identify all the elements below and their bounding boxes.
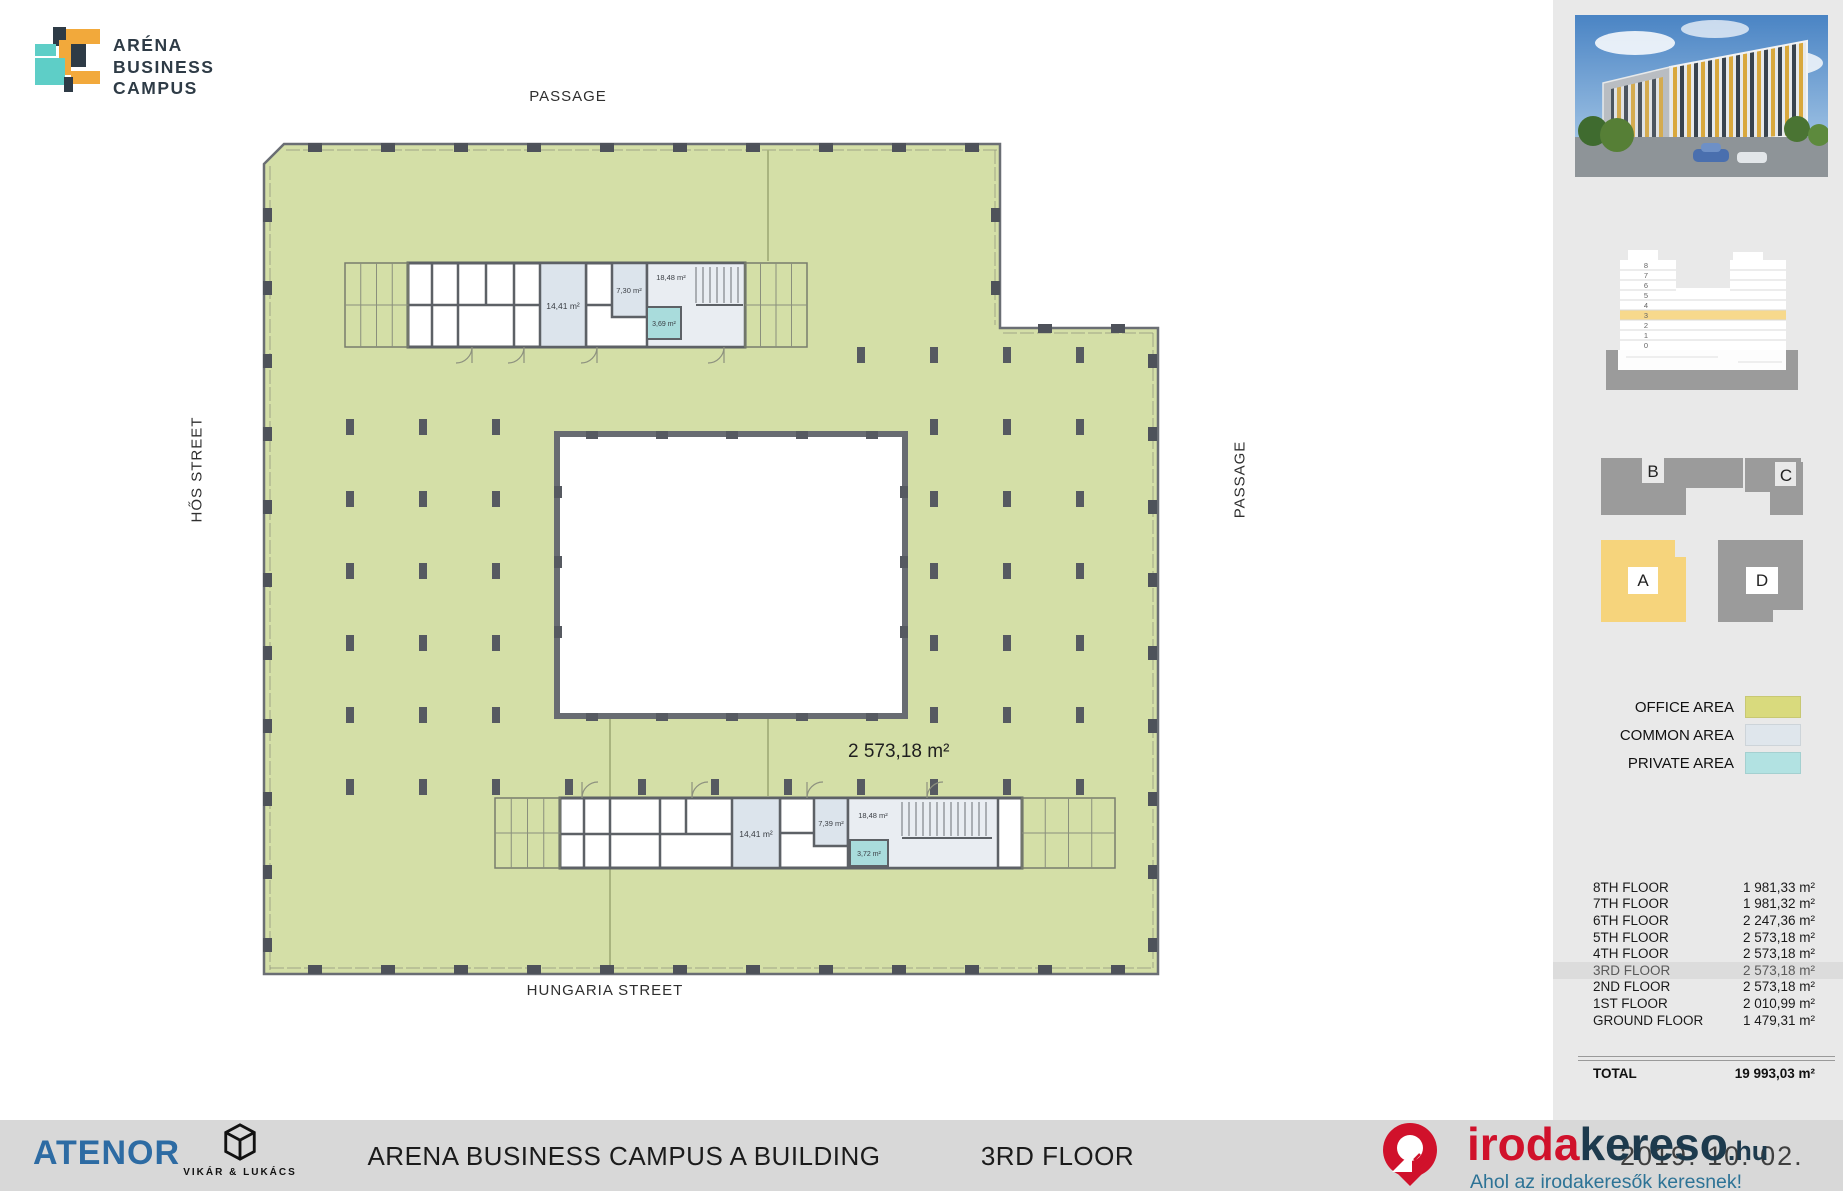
arena-logo-text: ARÉNA BUSINESS CAMPUS bbox=[113, 27, 214, 100]
street-label-hos-street: HŐS STREET bbox=[189, 390, 206, 550]
vikar-lukacs-name: VIKÁR & LUKÁCS bbox=[180, 1167, 300, 1178]
table-row: 1ST FLOOR 2 010,99 m² bbox=[1553, 995, 1843, 1012]
stack-floor-number-highlighted: 3 bbox=[1644, 311, 1648, 320]
room-label: 3,69 m² bbox=[652, 321, 676, 328]
legend-swatch-private bbox=[1745, 752, 1801, 774]
drawing-floor-label: 3RD FLOOR bbox=[950, 1141, 1165, 1172]
irodakereso-wordmark: irodakereso.hu bbox=[1467, 1122, 1768, 1173]
room-label: 3,72 m² bbox=[857, 851, 881, 858]
table-row: 8TH FLOOR 1 981,33 m² bbox=[1553, 879, 1843, 896]
page: ARÉNA BUSINESS CAMPUS PASSAGE HŐS STREET… bbox=[0, 0, 1843, 1191]
table-divider bbox=[1578, 1056, 1835, 1061]
room-label: 18,48 m² bbox=[656, 273, 686, 282]
atrium bbox=[557, 434, 905, 716]
table-row-highlighted: 3RD FLOOR 2 573,18 m² bbox=[1553, 962, 1843, 979]
stack-floor-number: 6 bbox=[1644, 281, 1648, 290]
site-block-diagram: B C A D bbox=[1600, 455, 1805, 625]
legend-label: OFFICE AREA bbox=[1635, 699, 1734, 716]
stack-floor-number: 4 bbox=[1644, 301, 1648, 310]
legend-label: COMMON AREA bbox=[1620, 727, 1734, 744]
stack-floor-number: 2 bbox=[1644, 321, 1648, 330]
street-label-hungaria-street: HUNGARIA STREET bbox=[500, 982, 710, 999]
total-label: TOTAL bbox=[1593, 1066, 1637, 1081]
logo-line-2: BUSINESS bbox=[113, 57, 214, 79]
floor-area: 1 981,33 m² bbox=[1743, 880, 1815, 895]
sidebar: 8 7 6 5 4 3 2 1 0 B C A bbox=[1553, 0, 1843, 1120]
arena-logo-icon bbox=[35, 27, 100, 92]
room-label: 7,30 m² bbox=[616, 286, 642, 295]
legend: OFFICE AREA COMMON AREA PRIVATE AREA bbox=[1553, 697, 1843, 781]
floor-area: 2 573,18 m² bbox=[1743, 946, 1815, 961]
legend-item-common: COMMON AREA bbox=[1553, 725, 1843, 745]
floor-name: 3RD FLOOR bbox=[1593, 963, 1670, 978]
block-a-label: A bbox=[1637, 571, 1649, 590]
floor-area: 1 981,32 m² bbox=[1743, 896, 1815, 911]
floor-name: 2ND FLOOR bbox=[1593, 979, 1670, 994]
stack-floor-number: 1 bbox=[1644, 331, 1648, 340]
table-row: 2ND FLOOR 2 573,18 m² bbox=[1553, 979, 1843, 996]
office-area-value: 2 573,18 m² bbox=[848, 741, 949, 763]
floor-plan: 14,41 m² 7,30 m² 18,48 m² 3,69 m² 14,41 … bbox=[262, 142, 1162, 977]
table-row: GROUND FLOOR 1 479,31 m² bbox=[1553, 1012, 1843, 1029]
floor-name: 4TH FLOOR bbox=[1593, 946, 1669, 961]
stack-floor-number: 5 bbox=[1644, 291, 1648, 300]
room-label: 18,48 m² bbox=[858, 811, 888, 820]
floor-name: GROUND FLOOR bbox=[1593, 1013, 1703, 1028]
footer-bar: ATENOR VIKÁR & LUKÁCS ARENA BUSINESS CAM… bbox=[0, 1120, 1843, 1191]
legend-item-office: OFFICE AREA bbox=[1553, 697, 1843, 717]
legend-item-private: PRIVATE AREA bbox=[1553, 753, 1843, 773]
vikar-lukacs-icon bbox=[221, 1123, 259, 1161]
bottom-core: 14,41 m² 7,39 m² 18,48 m² 3,72 m² bbox=[560, 798, 1022, 868]
floor-name: 6TH FLOOR bbox=[1593, 913, 1669, 928]
irodakereso-tagline: Ahol az irodakeresők keresnek! bbox=[1470, 1171, 1768, 1191]
atenor-logo: ATENOR bbox=[33, 1134, 180, 1173]
floor-area: 2 247,36 m² bbox=[1743, 913, 1815, 928]
floor-name: 7TH FLOOR bbox=[1593, 896, 1669, 911]
block-c-label: C bbox=[1780, 466, 1792, 485]
drawing-title: ARENA BUSINESS CAMPUS A BUILDING bbox=[329, 1141, 919, 1172]
floor-area: 2 573,18 m² bbox=[1743, 979, 1815, 994]
wordmark-kereso: kereso bbox=[1579, 1118, 1727, 1170]
block-b-label: B bbox=[1647, 462, 1658, 481]
street-label-passage-top: PASSAGE bbox=[498, 88, 638, 105]
floor-name: 8TH FLOOR bbox=[1593, 880, 1669, 895]
irodakereso-pin-icon bbox=[1378, 1122, 1442, 1188]
legend-swatch-common bbox=[1745, 724, 1801, 746]
legend-swatch-office bbox=[1745, 696, 1801, 718]
irodakereso-watermark: irodakereso.hu Ahol az irodakeresők kere… bbox=[1378, 1122, 1768, 1191]
street-label-passage-right: PASSAGE bbox=[1232, 400, 1249, 560]
floor-area: 2 573,18 m² bbox=[1743, 963, 1815, 978]
top-core: 14,41 m² 7,30 m² 18,48 m² 3,69 m² bbox=[408, 263, 745, 347]
table-row: 4TH FLOOR 2 573,18 m² bbox=[1553, 945, 1843, 962]
stack-floor-number: 0 bbox=[1644, 341, 1648, 350]
building-photo bbox=[1575, 15, 1828, 177]
wordmark-iroda: iroda bbox=[1467, 1118, 1579, 1170]
room-label: 7,39 m² bbox=[818, 819, 844, 828]
table-total-row: TOTAL 19 993,03 m² bbox=[1553, 1066, 1843, 1081]
room-label: 14,41 m² bbox=[546, 301, 580, 311]
logo-line-3: CAMPUS bbox=[113, 78, 214, 100]
floor-area-table: 8TH FLOOR 1 981,33 m² 7TH FLOOR 1 981,32… bbox=[1553, 879, 1843, 1028]
room-label: 14,41 m² bbox=[739, 829, 773, 839]
floor-name: 5TH FLOOR bbox=[1593, 930, 1669, 945]
floor-area: 1 479,31 m² bbox=[1743, 1013, 1815, 1028]
total-value: 19 993,03 m² bbox=[1735, 1066, 1815, 1081]
floor-stack-diagram: 8 7 6 5 4 3 2 1 0 bbox=[1598, 250, 1806, 395]
logo-line-1: ARÉNA bbox=[113, 35, 214, 57]
table-row: 5TH FLOOR 2 573,18 m² bbox=[1553, 929, 1843, 946]
vikar-lukacs-logo: VIKÁR & LUKÁCS bbox=[180, 1123, 300, 1178]
wordmark-hu: .hu bbox=[1728, 1136, 1769, 1166]
floor-area: 2 010,99 m² bbox=[1743, 996, 1815, 1011]
table-row: 6TH FLOOR 2 247,36 m² bbox=[1553, 912, 1843, 929]
table-row: 7TH FLOOR 1 981,32 m² bbox=[1553, 896, 1843, 913]
floor-name: 1ST FLOOR bbox=[1593, 996, 1668, 1011]
block-d-label: D bbox=[1756, 571, 1768, 590]
legend-label: PRIVATE AREA bbox=[1628, 755, 1734, 772]
floor-area: 2 573,18 m² bbox=[1743, 930, 1815, 945]
stack-floor-number: 7 bbox=[1644, 271, 1648, 280]
arena-business-campus-logo: ARÉNA BUSINESS CAMPUS bbox=[35, 27, 214, 100]
stack-floor-number: 8 bbox=[1644, 261, 1648, 270]
